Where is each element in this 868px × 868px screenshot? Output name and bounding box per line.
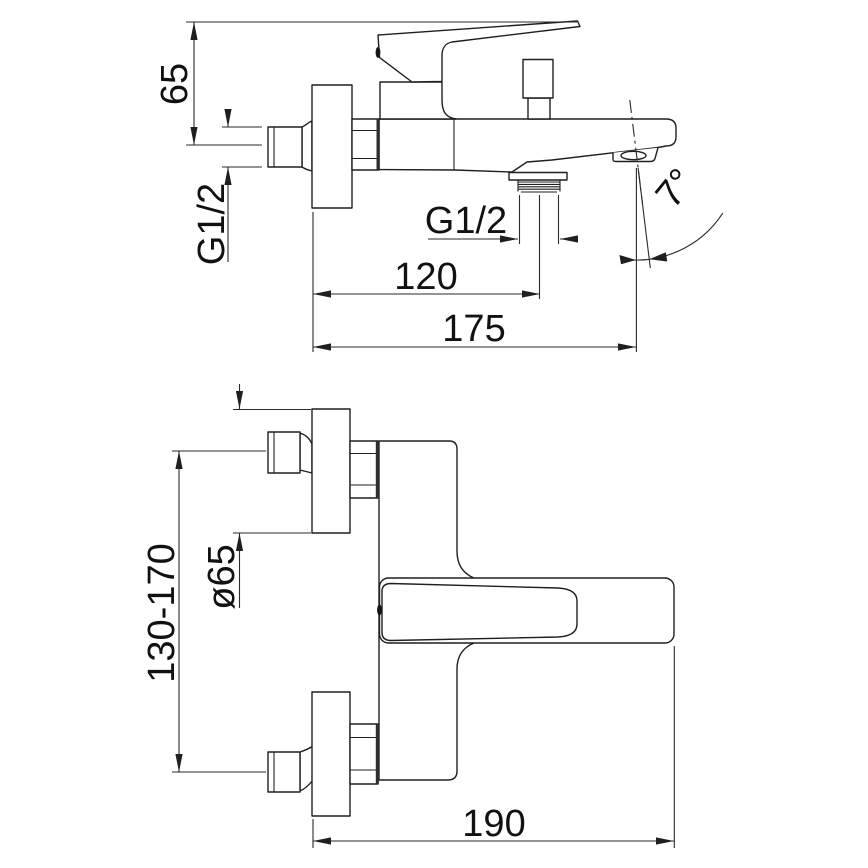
dim-inlet-spacing (172, 451, 266, 772)
plan-handle-top (382, 584, 577, 641)
label-175: 175 (442, 308, 505, 350)
side-handle-screw (376, 47, 381, 58)
plan-upper-nipple (268, 432, 300, 473)
plan-lower-nut-gap (376, 724, 379, 784)
plan-handle-screw (377, 605, 382, 616)
label-65: 65 (154, 63, 196, 105)
plan-upper-nut-gap (376, 441, 379, 498)
plan-lower-nut (350, 724, 378, 784)
plan-upper-nut (350, 441, 378, 498)
side-inlet-nipple (268, 127, 302, 167)
plan-lower-nipple (268, 752, 300, 792)
plan-view: ø65 130-170 190 (141, 384, 674, 848)
side-nut-gap (377, 119, 380, 170)
label-130-170: 130-170 (141, 543, 183, 682)
technical-drawing: 65 G1/2 G1/2 120 175 7° (0, 0, 868, 868)
label-diameter-65: ø65 (201, 544, 243, 609)
side-diverter-stem (528, 98, 550, 119)
side-tailpiece (302, 121, 312, 171)
side-outlet-boss (509, 173, 567, 181)
side-body-spout (379, 119, 676, 172)
dim-diameter-65 (233, 384, 311, 608)
side-neck (380, 82, 456, 119)
side-escutcheon (312, 85, 352, 208)
side-diverter-knob (523, 60, 553, 99)
side-union-nut (352, 119, 379, 170)
plan-upper-escutcheon (312, 409, 350, 533)
label-120: 120 (394, 256, 457, 298)
technical-drawing-page: 65 G1/2 G1/2 120 175 7° (0, 0, 868, 868)
side-outlet-threads (518, 180, 560, 192)
plan-lower-tailpiece (300, 746, 313, 791)
side-aerator-face (621, 151, 646, 159)
label-7deg: 7° (648, 161, 704, 216)
label-outlet-thread: G1/2 (425, 200, 507, 242)
plan-upper-tailpiece (300, 433, 312, 473)
plan-lower-escutcheon (312, 692, 350, 816)
side-view: 65 G1/2 G1/2 120 175 7° (154, 21, 723, 352)
label-inlet-thread: G1/2 (191, 183, 233, 265)
label-190: 190 (462, 803, 525, 845)
